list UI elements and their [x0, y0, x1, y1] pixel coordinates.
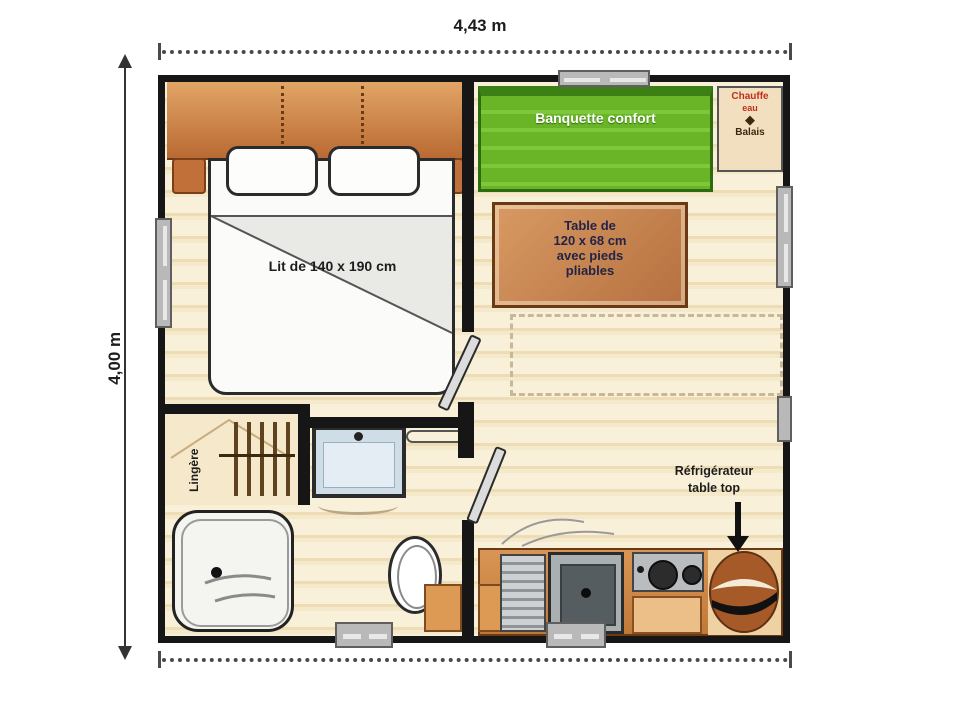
dimension-tick — [158, 43, 161, 60]
table-label-3: avec pieds — [495, 249, 685, 264]
pillow-right — [328, 146, 420, 196]
floorplan-canvas: 4,43 m 4,00 m Lit de 140 x 190 cm Banque… — [0, 0, 960, 720]
fridge-arrow-icon — [727, 536, 749, 552]
wall-wardrobe-side — [298, 404, 310, 505]
dimension-width-label: 4,43 m — [400, 16, 560, 36]
wall-stub — [458, 402, 474, 458]
table-label-4: pliables — [495, 264, 685, 279]
table-label-2: 120 x 68 cm — [495, 234, 685, 249]
sink-drain — [581, 588, 591, 598]
dining-table: Table de 120 x 68 cm avec pieds pliables — [492, 202, 688, 308]
washbasin-faucet — [354, 432, 363, 441]
dimension-width-line-bottom — [162, 658, 788, 662]
arrow-down-icon — [118, 646, 132, 660]
washbasin-front-curve — [318, 496, 398, 515]
wall-bathroom-top — [305, 417, 462, 428]
hob — [632, 552, 704, 592]
fridge-arrow-shaft — [735, 502, 741, 536]
banquette-label: Banquette confort — [488, 110, 703, 126]
bed-foot-left — [172, 158, 206, 194]
hob-knob — [637, 566, 644, 573]
washbasin — [312, 426, 406, 498]
dimension-tick — [789, 651, 792, 668]
utility-closet: Chauffe eau ◆ Balais — [717, 86, 783, 172]
arrow-up-icon — [118, 54, 132, 68]
pillow-left — [226, 146, 318, 196]
fridge-icon — [708, 550, 781, 635]
burner-large — [648, 560, 678, 590]
diamond-icon: ◆ — [719, 113, 781, 127]
sink-drainer — [500, 554, 546, 632]
bed-headboard-cabinet — [167, 82, 462, 160]
entrance-step-right — [546, 622, 606, 648]
table-folded-outline — [510, 314, 783, 396]
utility-closet-label-3: Balais — [719, 127, 781, 139]
wardrobe-lingere — [165, 414, 298, 505]
dimension-height-line — [124, 66, 126, 648]
dimension-height-label: 4,00 m — [105, 295, 125, 385]
fridge — [708, 550, 781, 635]
hob-cabinet — [632, 596, 702, 634]
window-left — [155, 218, 172, 328]
table-label-1: Table de — [495, 219, 685, 234]
washbasin-bowl — [323, 442, 395, 488]
wall-bedroom-divider — [462, 82, 474, 332]
bed-label: Lit de 140 x 190 cm — [210, 258, 455, 274]
wall-bathroom-kitchen — [462, 520, 474, 636]
entrance-step-left — [335, 622, 393, 648]
dimension-width-line-top — [162, 50, 788, 54]
utility-closet-label-1: Chauffe — [719, 91, 781, 103]
shower-water-lines — [175, 513, 291, 629]
clothes-rail — [219, 454, 295, 457]
banquette — [478, 86, 713, 192]
hanging-clothes — [225, 422, 293, 496]
door-swing-lines — [492, 504, 632, 548]
wardrobe-label: Lingère — [188, 422, 202, 492]
window-right — [776, 186, 793, 288]
fridge-label-line2: table top — [638, 481, 790, 495]
dimension-tick — [789, 43, 792, 60]
wall-wardrobe-top — [165, 404, 310, 414]
dimension-tick — [158, 651, 161, 668]
burner-small — [682, 565, 702, 585]
bathroom-cabinet — [424, 584, 462, 632]
fridge-label-line1: Réfrigérateur — [638, 464, 790, 478]
window-top — [558, 70, 650, 87]
wall-vent-right — [777, 396, 792, 442]
towel-rail — [406, 430, 464, 443]
shower-tray — [172, 510, 294, 632]
